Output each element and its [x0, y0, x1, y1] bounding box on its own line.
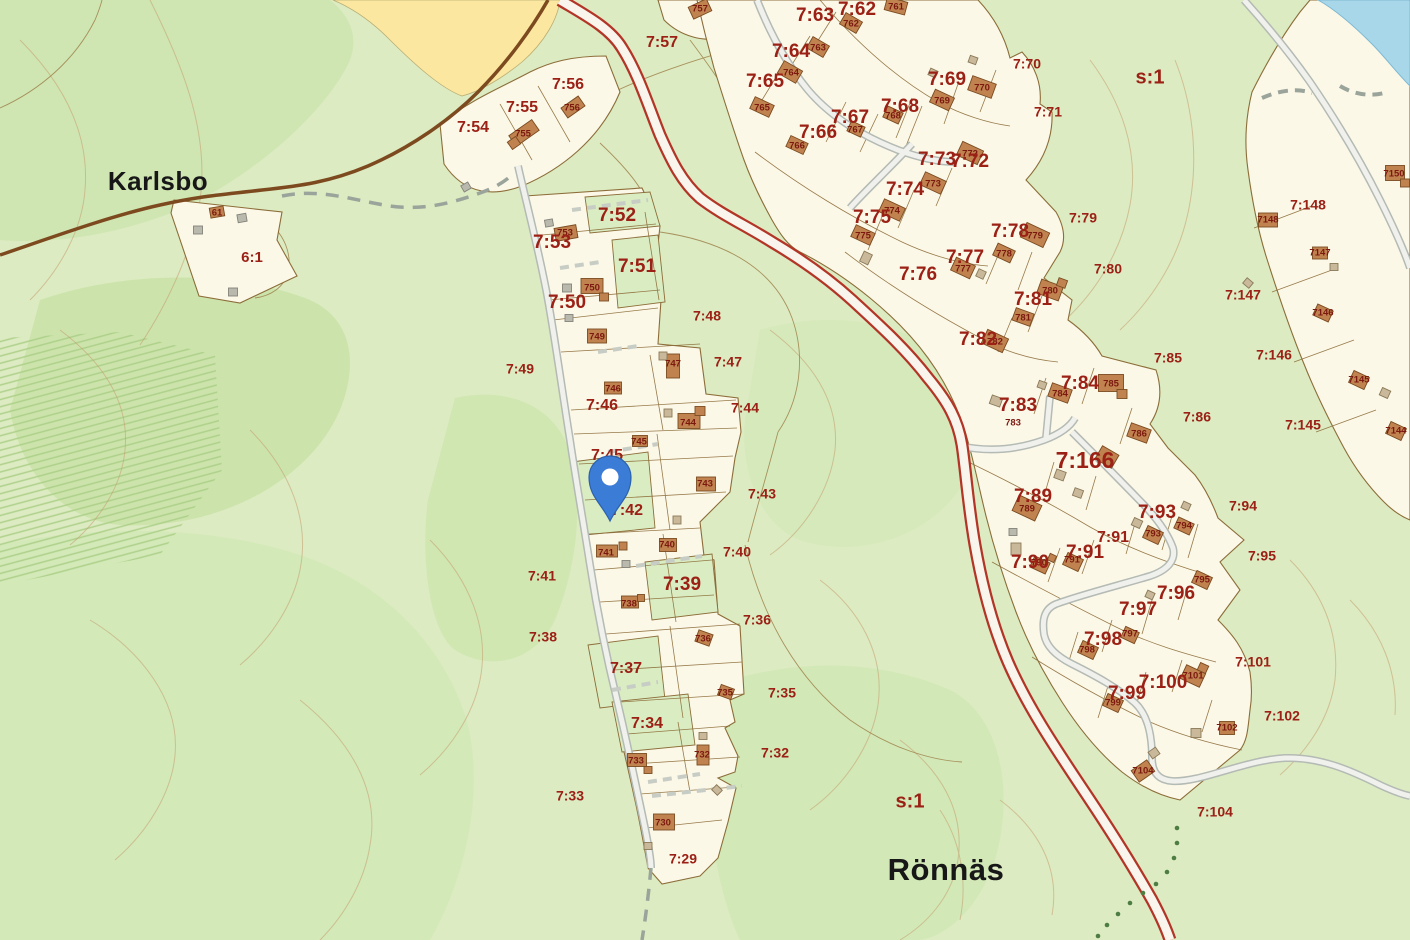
pin-hole — [602, 469, 619, 486]
place-label: Rönnäs — [888, 852, 1005, 887]
parcel-label: 7:35 — [768, 685, 796, 701]
parcel-label: 7:147 — [1225, 287, 1261, 303]
building-number-label: 743 — [697, 479, 713, 490]
building — [619, 542, 627, 550]
building — [1117, 390, 1127, 399]
building-number-label: 7150 — [1383, 169, 1404, 180]
parcel-label: 7:97 — [1119, 599, 1157, 620]
building-number-label: 756 — [564, 103, 580, 114]
parcel-label: 7:67 — [831, 107, 869, 128]
outbuilding — [194, 226, 203, 234]
parcel-label: 7:74 — [886, 179, 924, 200]
parcel-label: 7:104 — [1197, 804, 1233, 820]
trail-dot — [1128, 901, 1133, 906]
parcel-label: 7:101 — [1235, 654, 1271, 670]
parcel-label: 7:78 — [991, 221, 1029, 242]
parcel-label: 7:46 — [586, 397, 618, 414]
parcel-label: 7:44 — [731, 400, 759, 416]
outbuilding — [1009, 529, 1017, 536]
area-label: 6:1 — [241, 249, 263, 266]
parcel-label: 7:38 — [529, 629, 557, 645]
outbuilding — [544, 219, 553, 227]
parcel-label: 7:83 — [999, 395, 1037, 416]
building-number-label: 738 — [621, 599, 637, 610]
building — [644, 767, 652, 774]
parcel-label: 7:72 — [951, 151, 989, 172]
trail-dot — [1154, 882, 1159, 887]
building-number-label: 745 — [631, 437, 648, 448]
outbuilding — [673, 516, 681, 524]
parcel-label: 7:63 — [796, 5, 834, 26]
building-number-label: 755 — [515, 129, 532, 140]
building-number-label: 763 — [810, 43, 826, 54]
trail-dot — [1175, 841, 1180, 846]
parcel-label: 7:62 — [838, 0, 876, 20]
trail-dot — [1175, 826, 1180, 831]
outbuilding — [229, 288, 238, 296]
building-number-label: 736 — [695, 634, 711, 645]
building-number-label: 757 — [692, 4, 708, 15]
parcel-label: 7:95 — [1248, 548, 1276, 564]
building-number-label: 7144 — [1385, 426, 1407, 437]
outbuilding — [1191, 729, 1201, 738]
parcel-label: 7:50 — [548, 292, 586, 313]
building — [695, 407, 705, 416]
parcel-label: 7:145 — [1285, 417, 1321, 433]
building-number-label: 750 — [584, 283, 600, 294]
parcel-label: 7:84 — [1061, 373, 1099, 394]
building-number-label: 797 — [1122, 629, 1138, 640]
parcel-label: 7:51 — [618, 256, 656, 277]
trail-dot — [1105, 923, 1110, 928]
building-number-label: 733 — [628, 756, 644, 767]
parcel-label: 7:57 — [646, 34, 678, 51]
outbuilding — [1330, 264, 1338, 271]
area-label: s:1 — [1136, 66, 1165, 88]
parcel-label: 7:86 — [1183, 409, 1211, 425]
building-number-label: 794 — [1176, 521, 1193, 532]
parcel-label: 7:93 — [1138, 502, 1176, 523]
outbuilding — [699, 733, 707, 740]
building-number-label: 7145 — [1348, 375, 1370, 386]
parcel-label: 7:56 — [552, 76, 584, 93]
trail-dot — [1141, 891, 1146, 896]
building-number-label: 779 — [1027, 231, 1043, 242]
parcel-label: 7:34 — [631, 715, 663, 732]
parcel-label: 7:91 — [1066, 542, 1104, 563]
outbuilding — [237, 213, 247, 222]
parcel-label: 7:85 — [1154, 350, 1182, 366]
map-svg: 6175375575675775074974774674474574374174… — [0, 0, 1410, 940]
building-number-label: 765 — [754, 103, 771, 114]
parcel-label: 7:79 — [1069, 210, 1097, 226]
building-number-label: 749 — [589, 332, 605, 343]
parcel-label: 7:40 — [723, 544, 751, 560]
parcel-label: 7:148 — [1290, 197, 1326, 213]
trail-dot — [1172, 856, 1177, 861]
parcel-label: 7:75 — [853, 207, 891, 228]
parcel-label: 7:65 — [746, 71, 784, 92]
parcel-label: 7:37 — [610, 660, 642, 677]
building-number-label: 732 — [694, 750, 710, 761]
parcel-label: 7:55 — [506, 99, 538, 116]
parcel-label: 7:33 — [556, 788, 584, 804]
parcel-label: 7:80 — [1094, 261, 1122, 277]
building-number-label: 762 — [843, 19, 859, 30]
building-number-label: 61 — [212, 208, 223, 219]
parcel-label: 7:98 — [1084, 629, 1122, 650]
building-number-label: 7146 — [1312, 308, 1333, 319]
building — [600, 293, 609, 301]
parcel-label: 7:68 — [881, 96, 919, 117]
parcel-label: 7:36 — [743, 612, 771, 628]
outbuilding — [563, 284, 572, 292]
building-number-label: 7147 — [1309, 248, 1330, 259]
building-number-label: 769 — [934, 96, 950, 107]
trail-dot — [1116, 912, 1121, 917]
building-number-label: 735 — [717, 688, 734, 699]
parcel-label: 7:39 — [663, 574, 701, 595]
building-number-label: 7102 — [1216, 723, 1237, 734]
parcel-label: 7:82 — [959, 329, 997, 350]
place-label: Karlsbo — [108, 166, 208, 196]
parcel-label: 7:70 — [1013, 56, 1041, 72]
parcel-label: 7:52 — [598, 205, 636, 226]
building-number-label: 773 — [925, 179, 941, 190]
parcel-label: 7:77 — [946, 247, 984, 268]
parcel-label: 7:49 — [506, 361, 534, 377]
building-number-label: 7148 — [1257, 215, 1278, 226]
outbuilding — [644, 843, 652, 850]
building — [1401, 179, 1410, 187]
building-number-label: 740 — [659, 540, 675, 551]
building-number-label: 783 — [1005, 418, 1021, 429]
parcel-label: 7:48 — [693, 308, 721, 324]
building-number-label: 786 — [1131, 429, 1147, 440]
parcel-label: 7:89 — [1014, 486, 1052, 507]
building-number-label: 781 — [1015, 313, 1032, 324]
outbuilding — [664, 409, 672, 417]
building-number-label: 730 — [655, 818, 671, 829]
parcel-label: 7:90 — [1011, 552, 1049, 573]
building-number-label: 778 — [996, 249, 1012, 260]
parcel-label: 7:43 — [748, 486, 776, 502]
building-number-label: 785 — [1103, 379, 1120, 390]
parcel-label: 7:102 — [1264, 708, 1300, 724]
parcel-label: 7:53 — [533, 232, 571, 253]
parcel-label: 7:47 — [714, 354, 742, 370]
parcel-label: 7:41 — [528, 568, 556, 584]
parcel-label: 7:29 — [669, 851, 697, 867]
building-number-label: 7104 — [1132, 766, 1154, 777]
building-number-label: 770 — [974, 83, 990, 94]
building-number-label: 744 — [680, 418, 697, 429]
outbuilding — [622, 561, 630, 568]
area-label: s:1 — [896, 790, 925, 812]
parcel-label: 7:64 — [772, 41, 810, 62]
building-number-label: 764 — [783, 68, 800, 79]
parcel-label: 7:94 — [1229, 498, 1257, 514]
parcel-label: 7:71 — [1034, 104, 1062, 120]
parcel-label: 7:96 — [1157, 583, 1195, 604]
parcel-label: 7:69 — [928, 69, 966, 90]
parcel-label: 7:81 — [1014, 289, 1052, 310]
trail-dot — [1165, 870, 1170, 875]
parcel-label: 7:100 — [1139, 672, 1188, 693]
building-number-label: 775 — [855, 231, 872, 242]
parcel-label: 7:76 — [899, 264, 937, 285]
building-number-label: 747 — [665, 359, 681, 370]
building — [638, 595, 645, 602]
building-number-label: 795 — [1194, 575, 1211, 586]
parcel-label: 7:146 — [1256, 347, 1292, 363]
trail-dot — [1096, 934, 1101, 939]
parcel-label: 7:166 — [1056, 447, 1115, 473]
building-number-label: 741 — [598, 548, 615, 559]
parcel-label: 7:32 — [761, 745, 789, 761]
building-number-label: 761 — [888, 2, 905, 13]
building-number-label: 793 — [1145, 529, 1161, 540]
map-canvas[interactable]: 6175375575675775074974774674474574374174… — [0, 0, 1410, 940]
parcel-label: 7:54 — [457, 119, 489, 136]
outbuilding — [565, 315, 573, 322]
building-number-label: 746 — [605, 384, 621, 395]
parcel-label: 7:73 — [918, 149, 956, 170]
